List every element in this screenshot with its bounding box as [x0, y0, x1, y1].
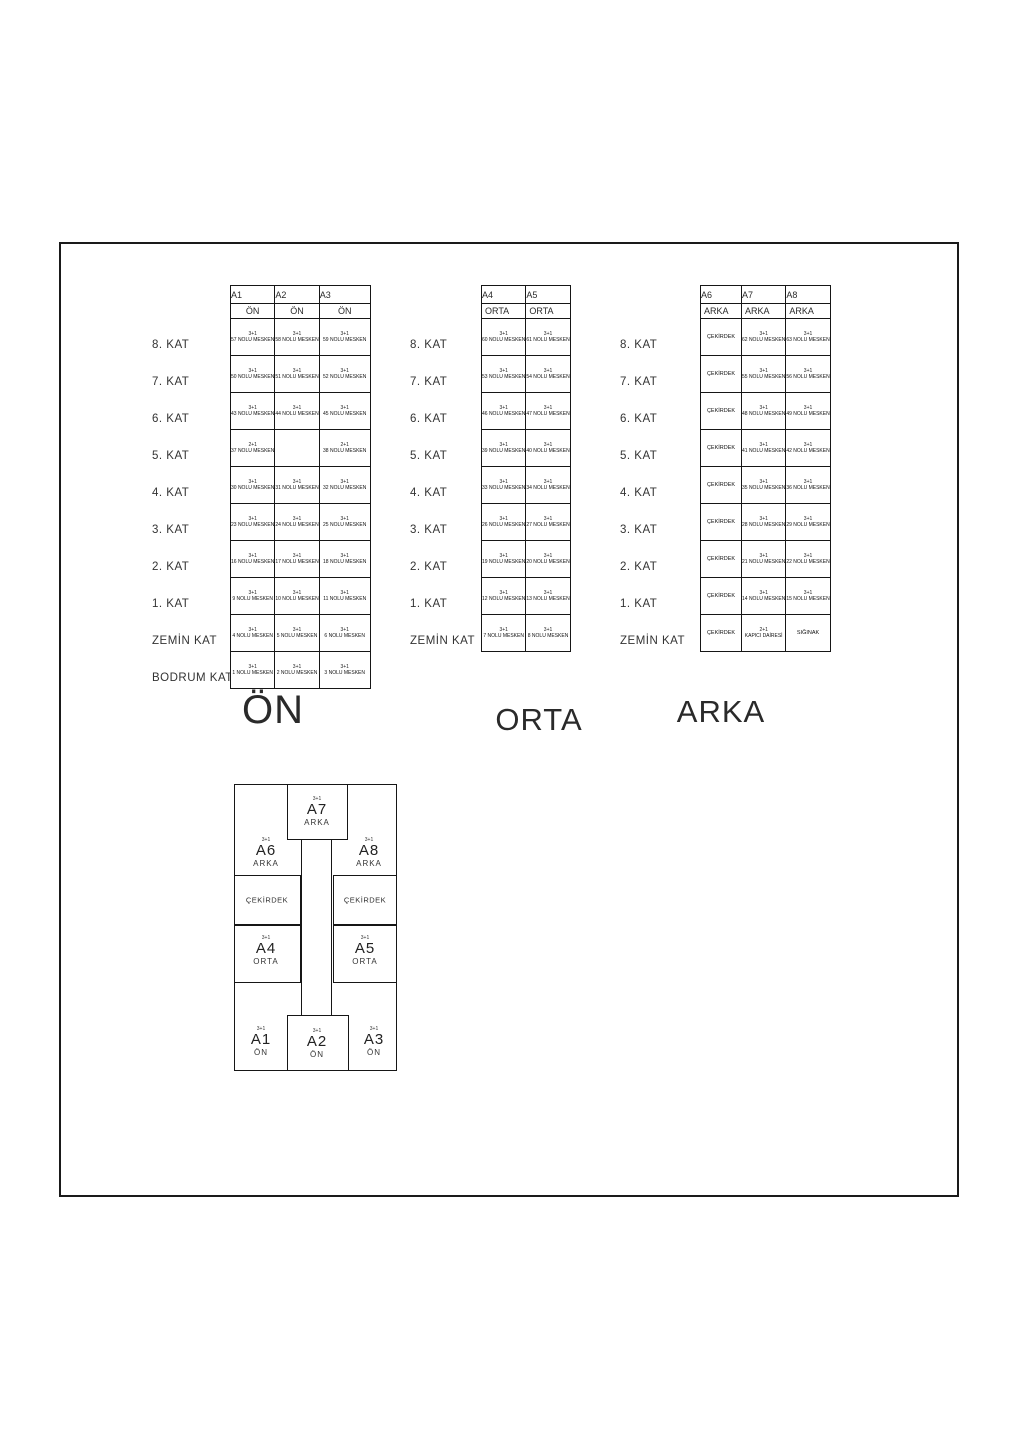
section-row-label: ARKA: [786, 304, 830, 319]
schedule-cell: 3+162 NOLU MESKEN: [742, 319, 786, 356]
schedule-cell: 3+111 NOLU MESKEN: [319, 578, 370, 615]
unit-name: ÇEKİRDEK: [707, 445, 735, 451]
schedule-cell: 3+110 NOLU MESKEN: [275, 578, 319, 615]
plan-unit-a8: 3+1 A8 ARKA: [356, 837, 382, 869]
plan-unit-zone: ARKA: [253, 859, 279, 869]
unit-name: 9 NOLU MESKEN: [232, 596, 273, 602]
unit-name: 4 NOLU MESKEN: [232, 633, 273, 639]
floor-label-on: BODRUM KAT: [152, 672, 233, 684]
floor-label-on: 6. KAT: [152, 413, 189, 425]
unit-name: 42 NOLU MESKEN: [786, 448, 829, 454]
unit-name: 5 NOLU MESKEN: [277, 633, 318, 639]
unit-name: 37 NOLU MESKEN: [231, 448, 274, 454]
floor-label-on: 8. KAT: [152, 339, 189, 351]
schedule-cell: ÇEKİRDEK: [701, 356, 742, 393]
unit-name: 7 NOLU MESKEN: [483, 633, 524, 639]
schedule-cell: 3+152 NOLU MESKEN: [319, 356, 370, 393]
floor-label-orta: 5. KAT: [410, 450, 447, 462]
unit-name: 63 NOLU MESKEN: [786, 337, 829, 343]
unit-name: 54 NOLU MESKEN: [526, 374, 569, 380]
unit-name: 58 NOLU MESKEN: [275, 337, 318, 343]
schedule-cell: 3+161 NOLU MESKEN: [526, 319, 570, 356]
schedule-cell: 3+149 NOLU MESKEN: [786, 393, 830, 430]
schedule-cell: 3+153 NOLU MESKEN: [482, 356, 526, 393]
unit-name: 11 NOLU MESKEN: [323, 596, 366, 602]
unit-name: 55 NOLU MESKEN: [742, 374, 785, 380]
unit-name: 60 NOLU MESKEN: [482, 337, 525, 343]
schedule-cell: 3+113 NOLU MESKEN: [526, 578, 570, 615]
unit-name: 26 NOLU MESKEN: [482, 522, 525, 528]
unit-name: 25 NOLU MESKEN: [323, 522, 366, 528]
schedule-cell: 3+145 NOLU MESKEN: [319, 393, 370, 430]
schedule-cell: 2+1KAPICI DAİRESİ: [742, 615, 786, 652]
schedule-cell: ÇEKİRDEK: [701, 504, 742, 541]
unit-name: 53 NOLU MESKEN: [482, 374, 525, 380]
unit-name: 41 NOLU MESKEN: [742, 448, 785, 454]
schedule-cell: 3+18 NOLU MESKEN: [526, 615, 570, 652]
unit-name: 6 NOLU MESKEN: [324, 633, 365, 639]
floor-label-on: 1. KAT: [152, 598, 189, 610]
floor-label-orta: 4. KAT: [410, 487, 447, 499]
floor-label-arka: 5. KAT: [620, 450, 657, 462]
floor-label-arka: 7. KAT: [620, 376, 657, 388]
plan-unit-zone: ORTA: [253, 957, 278, 967]
section-title-on: ÖN: [242, 688, 304, 733]
plan-unit-a1: 3+1 A1 ÖN: [251, 1026, 271, 1058]
schedule-cell: 3+150 NOLU MESKEN: [231, 356, 275, 393]
schedule-cell: 3+136 NOLU MESKEN: [786, 467, 830, 504]
schedule-cell: 2+137 NOLU MESKEN: [231, 430, 275, 467]
floor-label-orta: 7. KAT: [410, 376, 447, 388]
unit-name: ÇEKİRDEK: [707, 519, 735, 525]
plan-unit-id: A5: [355, 941, 375, 957]
plan-unit-a2: 3+1 A2 ÖN: [307, 1028, 327, 1060]
unit-name: 34 NOLU MESKEN: [526, 485, 569, 491]
unit-name: 32 NOLU MESKEN: [323, 485, 366, 491]
plan-unit-id: A6: [256, 843, 276, 859]
unit-name: 57 NOLU MESKEN: [231, 337, 274, 343]
floor-label-arka: ZEMİN KAT: [620, 635, 685, 647]
section-title-arka: ARKA: [677, 694, 765, 730]
schedule-cell: 3+114 NOLU MESKEN: [742, 578, 786, 615]
unit-name: 43 NOLU MESKEN: [231, 411, 274, 417]
unit-name: ÇEKİRDEK: [707, 593, 735, 599]
unit-name: 33 NOLU MESKEN: [482, 485, 525, 491]
schedule-cell: 3+14 NOLU MESKEN: [231, 615, 275, 652]
schedule-cell: ÇEKİRDEK: [701, 541, 742, 578]
unit-name: 15 NOLU MESKEN: [786, 596, 829, 602]
schedule-cell: 3+112 NOLU MESKEN: [482, 578, 526, 615]
column-header-a7: A7: [742, 286, 786, 304]
unit-name: 59 NOLU MESKEN: [323, 337, 366, 343]
schedule-cell: 3+131 NOLU MESKEN: [275, 467, 319, 504]
column-header-a3: A3: [319, 286, 370, 304]
schedule-cell: ÇEKİRDEK: [701, 430, 742, 467]
section-row-label: ORTA: [526, 304, 570, 319]
plan-core-label-right: ÇEKİRDEK: [344, 896, 386, 905]
schedule-cell: ÇEKİRDEK: [701, 467, 742, 504]
unit-name: 52 NOLU MESKEN: [323, 374, 366, 380]
unit-name: 51 NOLU MESKEN: [275, 374, 318, 380]
schedule-cell: 3+160 NOLU MESKEN: [482, 319, 526, 356]
schedule-cell: 3+130 NOLU MESKEN: [231, 467, 275, 504]
unit-name: 1 NOLU MESKEN: [232, 670, 273, 676]
plan-unit-a5: 3+1 A5 ORTA: [352, 935, 377, 967]
column-header-a6: A6: [701, 286, 742, 304]
unit-name: 12 NOLU MESKEN: [482, 596, 525, 602]
unit-name: 56 NOLU MESKEN: [786, 374, 829, 380]
schedule-cell: 3+156 NOLU MESKEN: [786, 356, 830, 393]
floor-label-orta: 1. KAT: [410, 598, 447, 610]
schedule-cell: 3+142 NOLU MESKEN: [786, 430, 830, 467]
plan-unit-a4: 3+1 A4 ORTA: [253, 935, 278, 967]
unit-name: ÇEKİRDEK: [707, 408, 735, 414]
unit-name: 21 NOLU MESKEN: [742, 559, 785, 565]
schedule-cell: 2+138 NOLU MESKEN: [319, 430, 370, 467]
schedule-cell: 3+15 NOLU MESKEN: [275, 615, 319, 652]
schedule-cell: 3+115 NOLU MESKEN: [786, 578, 830, 615]
schedule-cell: 3+141 NOLU MESKEN: [742, 430, 786, 467]
plan-unit-zone: ORTA: [352, 957, 377, 967]
schedule-cell: 3+143 NOLU MESKEN: [231, 393, 275, 430]
floor-label-on: ZEMİN KAT: [152, 635, 217, 647]
schedule-cell: 3+133 NOLU MESKEN: [482, 467, 526, 504]
plan-unit-a3: 3+1 A3 ÖN: [364, 1026, 384, 1058]
unit-name: ÇEKİRDEK: [707, 482, 735, 488]
unit-name: 45 NOLU MESKEN: [323, 411, 366, 417]
schedule-cell: 3+19 NOLU MESKEN: [231, 578, 275, 615]
floor-label-orta: 8. KAT: [410, 339, 447, 351]
unit-name: 61 NOLU MESKEN: [526, 337, 569, 343]
unit-name: 62 NOLU MESKEN: [742, 337, 785, 343]
column-header-a1: A1: [231, 286, 275, 304]
floor-label-arka: 1. KAT: [620, 598, 657, 610]
unit-name: 16 NOLU MESKEN: [231, 559, 274, 565]
schedule-cell: 3+120 NOLU MESKEN: [526, 541, 570, 578]
unit-name: 40 NOLU MESKEN: [526, 448, 569, 454]
section-row-label: ÖN: [275, 304, 319, 319]
schedule-cell: 3+124 NOLU MESKEN: [275, 504, 319, 541]
schedule-cell: 3+155 NOLU MESKEN: [742, 356, 786, 393]
unit-name: 30 NOLU MESKEN: [231, 485, 274, 491]
unit-name: 10 NOLU MESKEN: [275, 596, 318, 602]
schedule-cell: 3+16 NOLU MESKEN: [319, 615, 370, 652]
unit-name: 29 NOLU MESKEN: [786, 522, 829, 528]
schedule-cell: 3+119 NOLU MESKEN: [482, 541, 526, 578]
plan-unit-zone: ÖN: [310, 1050, 324, 1060]
unit-name: 28 NOLU MESKEN: [742, 522, 785, 528]
plan-core-label-left: ÇEKİRDEK: [246, 896, 288, 905]
schedule-cell: 3+139 NOLU MESKEN: [482, 430, 526, 467]
floor-label-arka: 2. KAT: [620, 561, 657, 573]
plan-unit-id: A7: [307, 802, 327, 818]
schedule-cell: ÇEKİRDEK: [701, 319, 742, 356]
unit-name: 27 NOLU MESKEN: [526, 522, 569, 528]
schedule-cell: 3+123 NOLU MESKEN: [231, 504, 275, 541]
plan-unit-id: A1: [251, 1032, 271, 1048]
column-header-a8: A8: [786, 286, 830, 304]
unit-name: ÇEKİRDEK: [707, 630, 735, 636]
plan-unit-zone: ARKA: [356, 859, 382, 869]
column-header-a2: A2: [275, 286, 319, 304]
unit-name: KAPICI DAİRESİ: [745, 633, 783, 639]
unit-name: ÇEKİRDEK: [707, 556, 735, 562]
schedule-cell: 3+122 NOLU MESKEN: [786, 541, 830, 578]
schedule-cell: 3+151 NOLU MESKEN: [275, 356, 319, 393]
section-row-label: ARKA: [742, 304, 786, 319]
plan-unit-id: A4: [256, 941, 276, 957]
plan-unit-zone: ÖN: [367, 1048, 381, 1058]
schedule-cell: 3+117 NOLU MESKEN: [275, 541, 319, 578]
unit-name: 20 NOLU MESKEN: [526, 559, 569, 565]
unit-name: 35 NOLU MESKEN: [742, 485, 785, 491]
schedule-cell: 3+159 NOLU MESKEN: [319, 319, 370, 356]
section-row-label: ORTA: [482, 304, 526, 319]
schedule-cell: 3+13 NOLU MESKEN: [319, 652, 370, 689]
unit-name: SIĞINAK: [797, 630, 819, 636]
unit-name: 8 NOLU MESKEN: [528, 633, 569, 639]
floor-label-on: 5. KAT: [152, 450, 189, 462]
plan-unit-id: A2: [307, 1034, 327, 1050]
schedule-cell: 3+118 NOLU MESKEN: [319, 541, 370, 578]
plan-unit-id: A8: [359, 843, 379, 859]
plan-unit-zone: ÖN: [254, 1048, 268, 1058]
unit-name: 31 NOLU MESKEN: [275, 485, 318, 491]
unit-name: 38 NOLU MESKEN: [323, 448, 366, 454]
unit-name: 17 NOLU MESKEN: [275, 559, 318, 565]
floor-label-orta: ZEMİN KAT: [410, 635, 475, 647]
plan-unit-id: A3: [364, 1032, 384, 1048]
schedule-cell: 3+134 NOLU MESKEN: [526, 467, 570, 504]
schedule-cell-empty: [275, 430, 319, 467]
unit-name: 14 NOLU MESKEN: [742, 596, 785, 602]
schedule-cell: 3+128 NOLU MESKEN: [742, 504, 786, 541]
unit-name: 47 NOLU MESKEN: [526, 411, 569, 417]
section-title-orta: ORTA: [495, 702, 582, 738]
unit-name: 49 NOLU MESKEN: [786, 411, 829, 417]
floor-label-on: 3. KAT: [152, 524, 189, 536]
unit-name: 24 NOLU MESKEN: [275, 522, 318, 528]
schedule-cell: 3+163 NOLU MESKEN: [786, 319, 830, 356]
schedule-table-on: A1A2A3ÖNÖNÖN3+157 NOLU MESKEN3+158 NOLU …: [230, 285, 371, 689]
floor-label-arka: 6. KAT: [620, 413, 657, 425]
floor-label-orta: 2. KAT: [410, 561, 447, 573]
unit-name: 2 NOLU MESKEN: [277, 670, 318, 676]
schedule-cell: 3+148 NOLU MESKEN: [742, 393, 786, 430]
schedule-cell: 3+116 NOLU MESKEN: [231, 541, 275, 578]
schedule-cell: 3+135 NOLU MESKEN: [742, 467, 786, 504]
schedule-cell: 3+127 NOLU MESKEN: [526, 504, 570, 541]
unit-name: 23 NOLU MESKEN: [231, 522, 274, 528]
unit-name: ÇEKİRDEK: [707, 371, 735, 377]
unit-name: 46 NOLU MESKEN: [482, 411, 525, 417]
schedule-cell: 3+17 NOLU MESKEN: [482, 615, 526, 652]
floor-label-orta: 3. KAT: [410, 524, 447, 536]
plan-unit-a7: 3+1 A7 ARKA: [304, 796, 330, 828]
unit-name: ÇEKİRDEK: [707, 334, 735, 340]
unit-name: 39 NOLU MESKEN: [482, 448, 525, 454]
floor-label-on: 7. KAT: [152, 376, 189, 388]
schedule-cell: 3+154 NOLU MESKEN: [526, 356, 570, 393]
schedule-cell: 3+121 NOLU MESKEN: [742, 541, 786, 578]
schedule-cell: ÇEKİRDEK: [701, 393, 742, 430]
schedule-cell: 3+157 NOLU MESKEN: [231, 319, 275, 356]
schedule-cell: 3+126 NOLU MESKEN: [482, 504, 526, 541]
unit-name: 3 NOLU MESKEN: [324, 670, 365, 676]
schedule-cell: ÇEKİRDEK: [701, 615, 742, 652]
plan-unit-a6: 3+1 A6 ARKA: [253, 837, 279, 869]
unit-name: 48 NOLU MESKEN: [742, 411, 785, 417]
schedule-cell: SIĞINAK: [786, 615, 830, 652]
column-header-a5: A5: [526, 286, 570, 304]
schedule-cell: 3+125 NOLU MESKEN: [319, 504, 370, 541]
floor-label-on: 4. KAT: [152, 487, 189, 499]
floor-label-arka: 8. KAT: [620, 339, 657, 351]
section-row-label: ÖN: [319, 304, 370, 319]
schedule-cell: 3+147 NOLU MESKEN: [526, 393, 570, 430]
floor-label-on: 2. KAT: [152, 561, 189, 573]
floor-label-arka: 3. KAT: [620, 524, 657, 536]
schedule-cell: 3+12 NOLU MESKEN: [275, 652, 319, 689]
plan-unit-zone: ARKA: [304, 818, 330, 828]
schedule-cell: 3+132 NOLU MESKEN: [319, 467, 370, 504]
section-row-label: ÖN: [231, 304, 275, 319]
unit-name: 44 NOLU MESKEN: [275, 411, 318, 417]
schedule-cell: 3+144 NOLU MESKEN: [275, 393, 319, 430]
schedule-table-orta: A4A5ORTAORTA3+160 NOLU MESKEN3+161 NOLU …: [481, 285, 571, 652]
schedule-cell: ÇEKİRDEK: [701, 578, 742, 615]
unit-name: 50 NOLU MESKEN: [231, 374, 274, 380]
floor-label-arka: 4. KAT: [620, 487, 657, 499]
unit-name: 18 NOLU MESKEN: [323, 559, 366, 565]
schedule-cell: 3+140 NOLU MESKEN: [526, 430, 570, 467]
plan-corridor-shaft: [301, 840, 332, 1015]
schedule-cell: 3+129 NOLU MESKEN: [786, 504, 830, 541]
unit-name: 19 NOLU MESKEN: [482, 559, 525, 565]
schedule-cell: 3+146 NOLU MESKEN: [482, 393, 526, 430]
schedule-cell: 3+158 NOLU MESKEN: [275, 319, 319, 356]
unit-name: 22 NOLU MESKEN: [786, 559, 829, 565]
schedule-table-arka: A6A7A8ARKAARKAARKAÇEKİRDEK3+162 NOLU MES…: [700, 285, 831, 652]
floor-label-orta: 6. KAT: [410, 413, 447, 425]
column-header-a4: A4: [482, 286, 526, 304]
unit-name: 13 NOLU MESKEN: [526, 596, 569, 602]
section-row-label: ARKA: [701, 304, 742, 319]
schedule-cell: 3+11 NOLU MESKEN: [231, 652, 275, 689]
unit-name: 36 NOLU MESKEN: [786, 485, 829, 491]
